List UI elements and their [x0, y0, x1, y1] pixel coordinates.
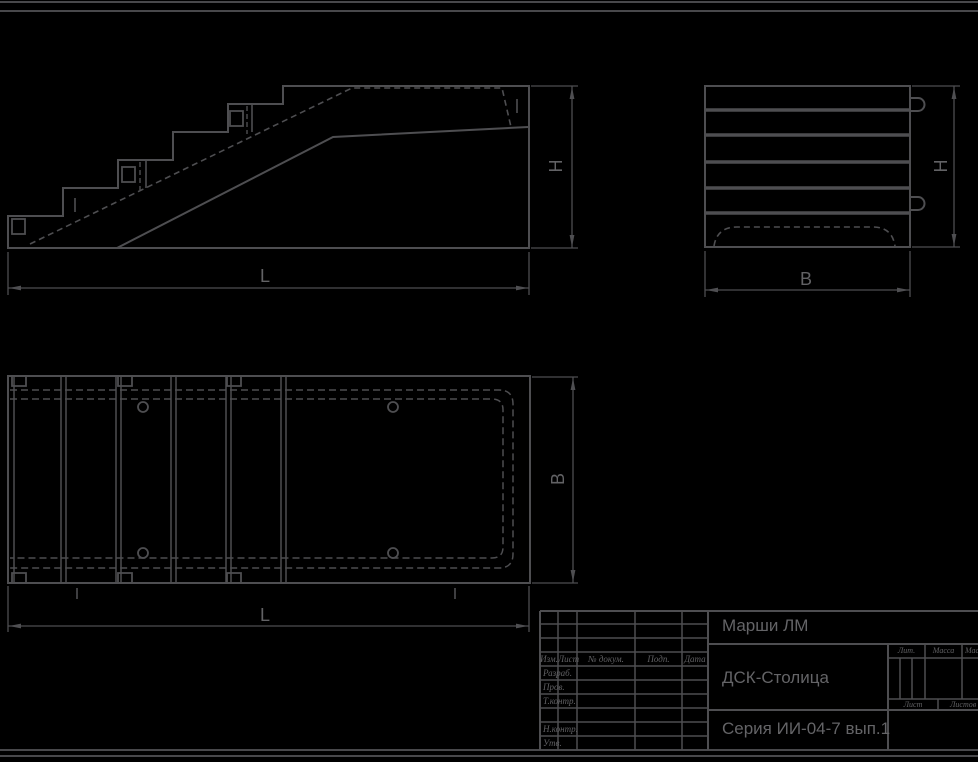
lifting-loop [12, 219, 25, 234]
loop-hole [388, 548, 398, 558]
col-doc: № докум. [577, 654, 635, 664]
col-podp: Подп. [635, 654, 682, 664]
row-checked: Пров. [543, 682, 565, 692]
end-width-label: B [796, 269, 816, 290]
drawing-linework [0, 0, 978, 762]
lifting-hook [910, 98, 925, 111]
row-tcontrol: Т.контр. [543, 696, 576, 706]
label-sheet: Лист [888, 700, 938, 709]
dim-extension-lines [705, 86, 960, 297]
lifting-hook [910, 197, 925, 210]
stair-plan-view [8, 376, 530, 599]
loop-hole [138, 402, 148, 412]
soffit-line [117, 127, 528, 248]
row-approved: Утв. [543, 738, 562, 748]
titleblock-title: Марши ЛМ [722, 616, 808, 636]
lifting-loop [230, 111, 243, 126]
lifting-loop [122, 167, 135, 182]
col-list: Лист [558, 654, 577, 664]
loop-pocket-edge [146, 104, 252, 188]
underside-hidden-dashed [714, 227, 895, 246]
plan-outline [8, 376, 530, 583]
label-mass: Масса [925, 646, 962, 655]
stringer-hidden-outer-dashed [10, 390, 513, 568]
loop-pocket-edge-dashed [140, 106, 247, 190]
end-view-dimensions [705, 86, 960, 297]
side-length-label: L [255, 266, 275, 287]
label-sheets: Листов [950, 700, 976, 709]
plan-width-label: B [548, 469, 568, 489]
loop-pocket-plan [12, 376, 241, 583]
dim-arrows [9, 378, 575, 628]
stringer-hidden-inner-dashed [10, 399, 503, 558]
stair-end-view [705, 86, 925, 247]
plan-view-dimensions [8, 377, 578, 632]
dim-extension-lines [8, 377, 578, 632]
row-developed: Разраб. [543, 668, 572, 678]
label-scale: Масштаб [965, 646, 978, 655]
titleblock-organization: ДСК-Столица [722, 668, 829, 688]
tread-mark [77, 588, 455, 599]
loop-hole [138, 548, 148, 558]
col-izm: Изм. [540, 654, 558, 664]
label-lit: Лит. [888, 646, 925, 655]
end-height-label: H [931, 156, 951, 176]
titleblock-series: Серия ИИ-04-7 вып.1 [722, 719, 890, 739]
side-height-label: H [546, 156, 566, 176]
hidden-edge-dashed [30, 88, 511, 244]
loop-hole [388, 402, 398, 412]
stair-outline-path [8, 86, 529, 248]
tread-edge-lines [705, 110, 910, 213]
tread-edge-lines [14, 377, 286, 582]
col-data: Дата [682, 654, 708, 664]
engineering-drawing-sheet: L H H B B L Марши ЛМ ДСК-Столица Серия И… [0, 0, 978, 762]
stair-side-view [8, 86, 529, 248]
plan-length-label: L [255, 605, 275, 626]
row-ncontrol: Н.контр. [543, 724, 578, 734]
